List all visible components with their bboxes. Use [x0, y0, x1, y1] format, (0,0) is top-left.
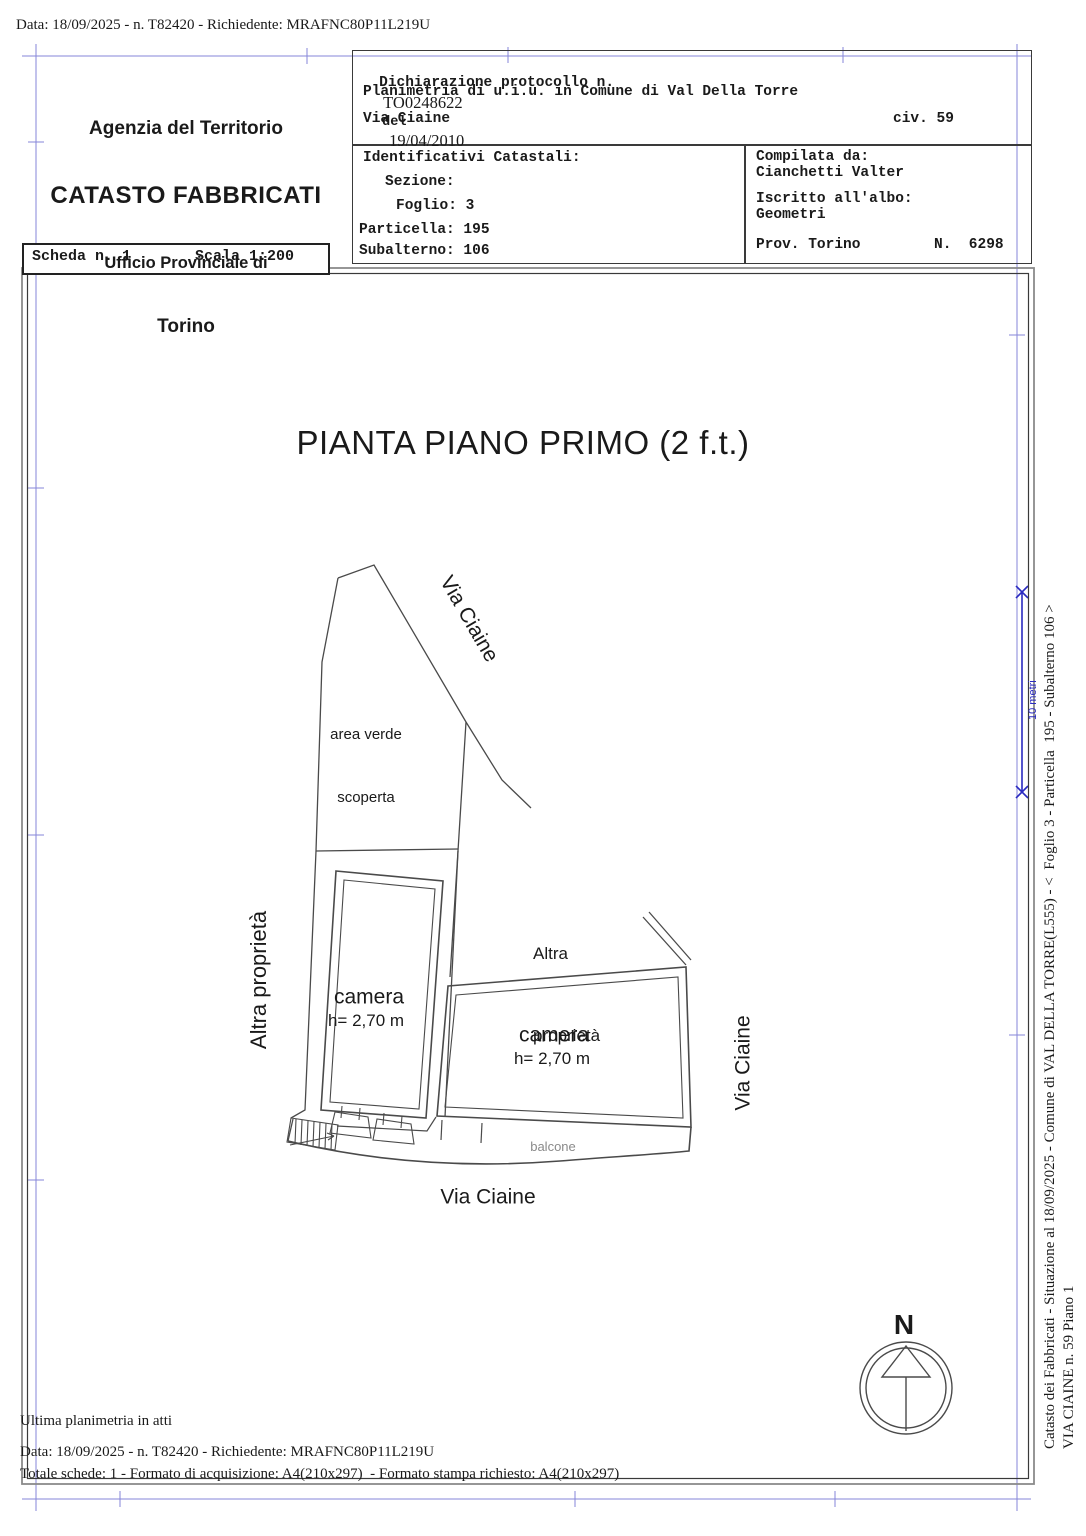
- compiler-number: N. 6298: [934, 237, 1004, 254]
- scheda-number: Scheda n. 1: [32, 248, 131, 266]
- identifiers-subalterno: Subalterno: 106: [359, 243, 490, 260]
- agency-catasto: CATASTO FABBRICATI: [36, 182, 336, 211]
- compiler-prov: Prov. Torino: [756, 237, 860, 254]
- other-property-label-right: Altra proprietà: [533, 886, 600, 1104]
- compiler-name: Cianchetti Valter: [756, 165, 904, 182]
- cadastral-document-page: Data: 18/09/2025 - n. T82420 - Richieden…: [0, 0, 1086, 1536]
- planimetria-line: Planimetria di u.i.u. in Comune di Val D…: [363, 84, 798, 101]
- room1-height-label: h= 2,70 m: [328, 1011, 404, 1031]
- balcony-label: balcone: [530, 1139, 576, 1155]
- scheda-scale: Scala 1:200: [195, 248, 294, 266]
- identifiers-title: Identificativi Catastali:: [363, 150, 581, 167]
- civic-number: civ. 59: [893, 111, 954, 128]
- room2-height-label: h= 2,70 m: [514, 1049, 590, 1069]
- green-area-line1: area verde: [330, 724, 402, 745]
- footer-line1: Ultima planimetria in atti: [20, 1412, 172, 1430]
- identifiers-sezione: Sezione:: [385, 174, 455, 191]
- protocol-date: 19/04/2010: [389, 131, 464, 150]
- north-compass: [860, 1342, 952, 1434]
- staircase: [287, 1118, 338, 1150]
- street-label-right: Via Ciaine: [730, 1015, 755, 1110]
- scale-bar-label: 10 metri: [1027, 680, 1040, 720]
- other-property-right-line1: Altra: [533, 940, 600, 967]
- room1-label: camera: [334, 984, 404, 1009]
- request-header-line: Data: 18/09/2025 - n. T82420 - Richieden…: [16, 16, 430, 34]
- identifiers-foglio: Foglio: 3: [396, 198, 474, 215]
- footer-line3: Totale schede: 1 - Formato di acquisizio…: [20, 1465, 619, 1483]
- street-line: Via Ciaine: [363, 111, 450, 128]
- plan-title: PIANTA PIANO PRIMO (2 f.t.): [297, 423, 750, 463]
- margin-caption-line1: Catasto dei Fabbricati - Situazione al 1…: [1041, 604, 1059, 1449]
- margin-caption-line2: VIA CIAINE n. 59 Piano 1: [1060, 1286, 1078, 1449]
- agency-name: Agenzia del Territorio: [36, 118, 336, 141]
- identifiers-particella: Particella: 195: [359, 222, 490, 239]
- green-area-label: area verde scoperta: [330, 682, 402, 850]
- footer-line2: Data: 18/09/2025 - n. T82420 - Richieden…: [20, 1443, 434, 1461]
- compiler-albo: Geometri: [756, 207, 826, 224]
- compiler-label: Compilata da:: [756, 149, 869, 166]
- green-area-line2: scoperta: [330, 787, 402, 808]
- north-label: N: [894, 1308, 914, 1342]
- agency-city: Torino: [36, 316, 336, 339]
- agency-block: Agenzia del Territorio CATASTO FABBRICAT…: [36, 80, 336, 377]
- room2-label: camera: [519, 1022, 589, 1047]
- street-label-bottom: Via Ciaine: [440, 1184, 535, 1209]
- compiler-albo-label: Iscritto all'albo:: [756, 191, 913, 208]
- other-property-label-left: Altra proprietà: [246, 911, 272, 1049]
